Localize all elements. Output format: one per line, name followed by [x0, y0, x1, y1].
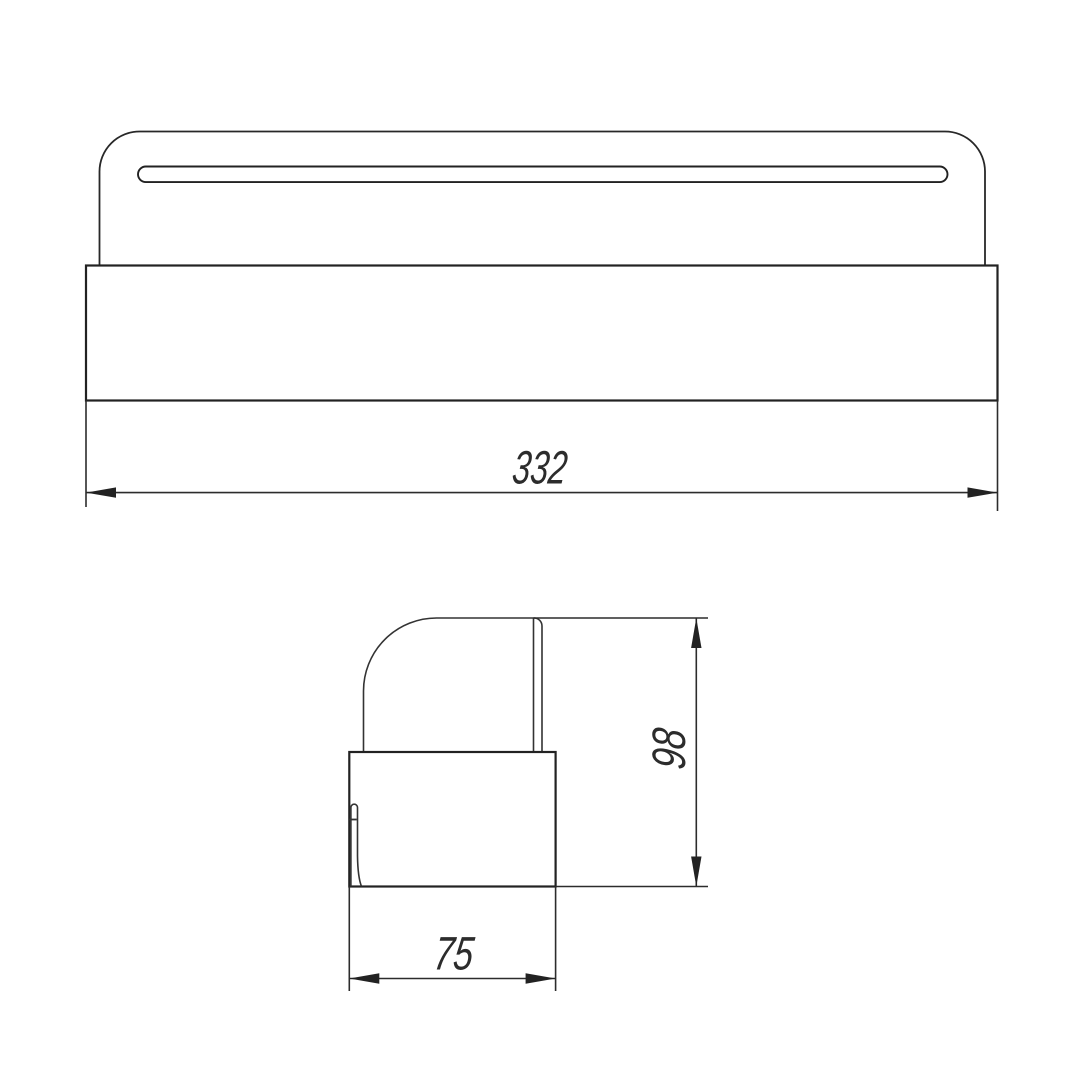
- svg-text:332: 332: [510, 441, 570, 494]
- svg-text:75: 75: [431, 927, 477, 980]
- svg-text:98: 98: [642, 725, 695, 771]
